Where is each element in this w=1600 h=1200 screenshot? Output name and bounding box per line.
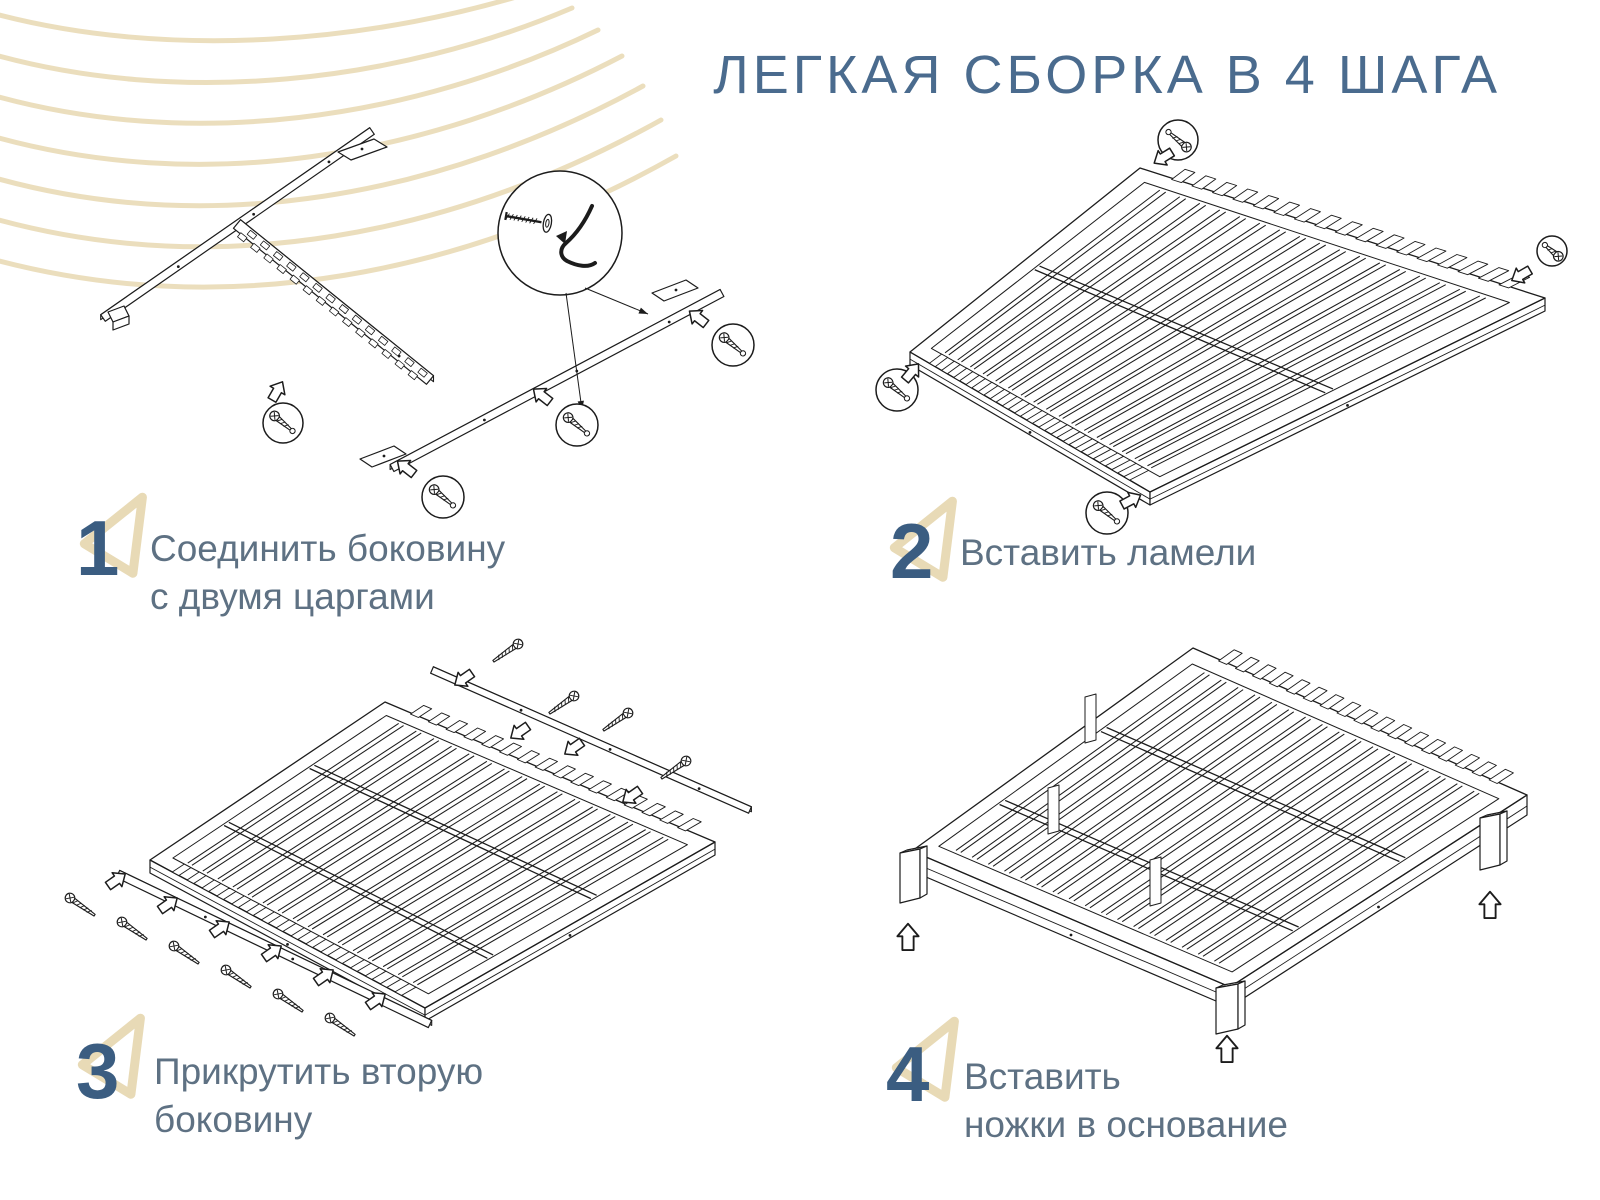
- step-caption-line: Вставить ламели: [960, 529, 1460, 577]
- step-caption-line: с двумя царгами: [150, 573, 650, 621]
- step-caption: Вставить ламели: [960, 529, 1460, 625]
- step-caption-line: Вставить: [964, 1053, 1464, 1101]
- step-caption: Вставить ножки в основание: [964, 1053, 1464, 1149]
- step-4: 4 Вставить ножки в основание: [876, 1005, 1476, 1175]
- step-caption-line: ножки в основание: [964, 1101, 1464, 1149]
- step-caption-line: Соединить боковину: [150, 525, 650, 573]
- step-caption: Прикрутить вторую боковину: [154, 1048, 654, 1144]
- step-number: 4: [886, 1035, 929, 1113]
- step-number: 2: [890, 512, 933, 590]
- step-2: 2 Вставить ламели: [872, 485, 1432, 645]
- step-caption-line: боковину: [154, 1096, 654, 1144]
- page-title: ЛЕГКАЯ СБОРКА В 4 ШАГА: [713, 44, 1501, 106]
- step-number: 3: [76, 1032, 119, 1110]
- step-caption-line: Прикрутить вторую: [154, 1048, 654, 1096]
- step-1: 1 Соединить боковину с двумя царгами: [60, 485, 620, 645]
- step-caption: Соединить боковину с двумя царгами: [150, 525, 650, 621]
- step-3: 3 Прикрутить вторую боковину: [62, 1000, 622, 1170]
- step-caption-line: [960, 577, 1460, 625]
- step-number: 1: [76, 509, 119, 587]
